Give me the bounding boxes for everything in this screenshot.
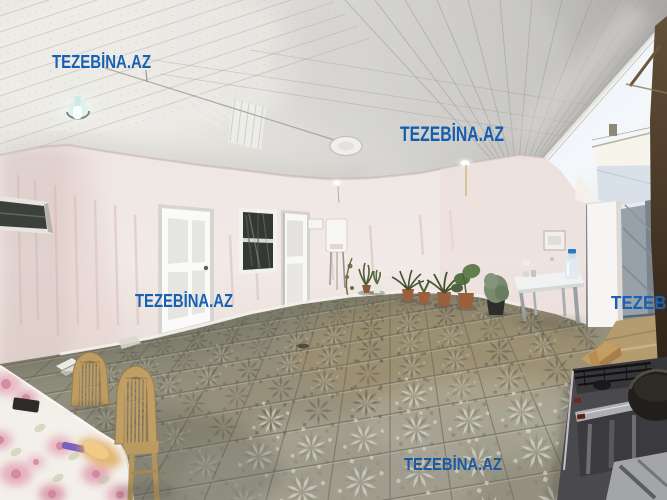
svg-text:TEZEBİNA.AZ: TEZEBİNA.AZ [135, 291, 233, 311]
svg-text:TEZEBİNA.AZ: TEZEBİNA.AZ [400, 123, 504, 146]
svg-text:TEZEBİNA.AZ: TEZEBİNA.AZ [52, 52, 151, 72]
svg-text:TEZEBİNA.AZ: TEZEBİNA.AZ [611, 293, 667, 313]
svg-text:TEZEBİNA.AZ: TEZEBİNA.AZ [404, 454, 502, 474]
